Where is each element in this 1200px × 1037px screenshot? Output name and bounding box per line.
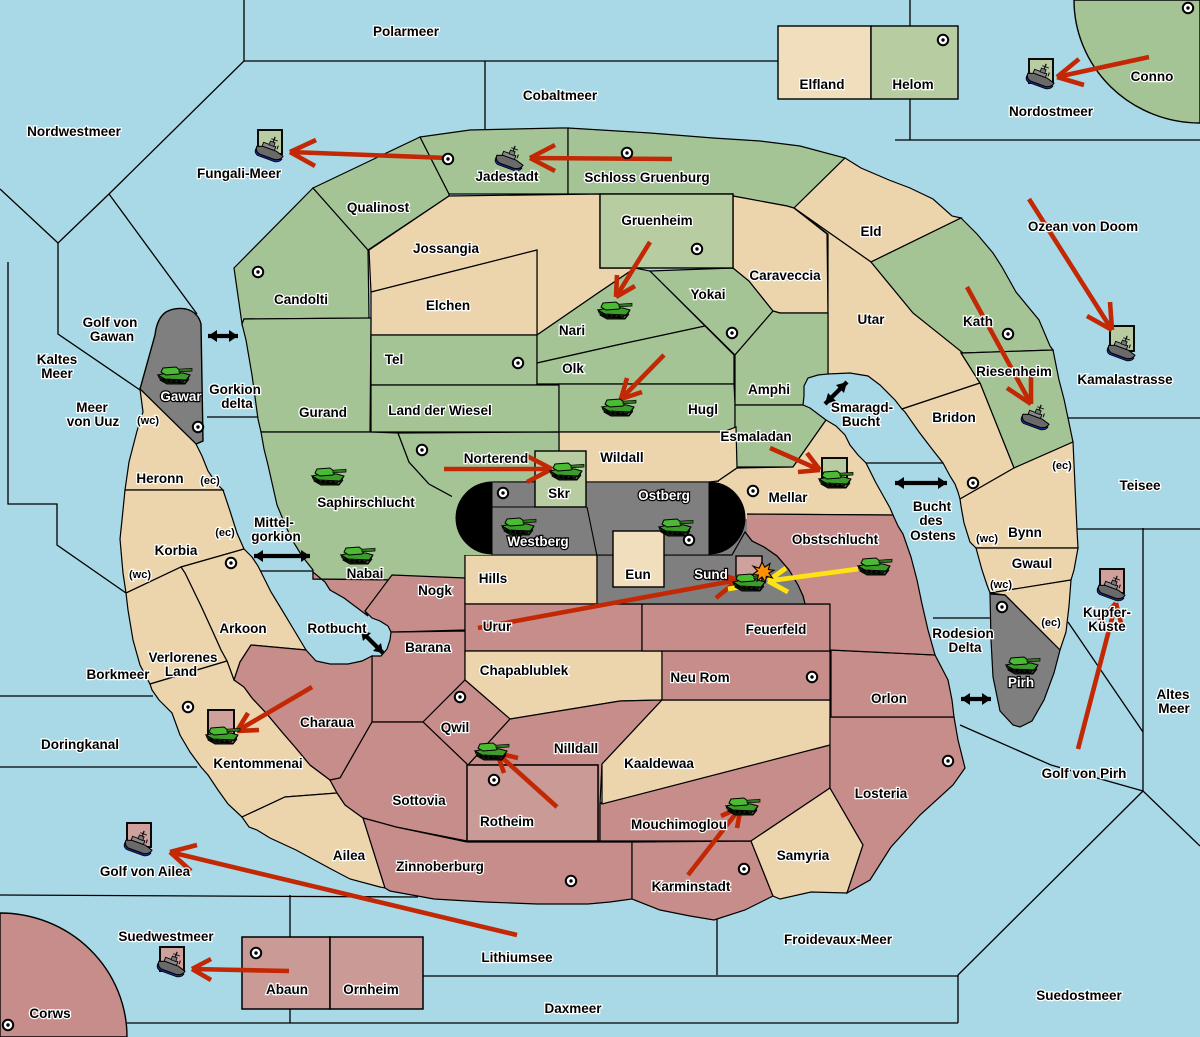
- svg-text:Smaragd-: Smaragd-: [831, 400, 893, 415]
- svg-text:Gwaul: Gwaul: [1012, 556, 1053, 571]
- svg-text:Borkmeer: Borkmeer: [86, 667, 150, 682]
- svg-text:Caraveccia: Caraveccia: [749, 268, 821, 283]
- svg-text:Nordwestmeer: Nordwestmeer: [27, 124, 122, 139]
- svg-text:Qwil: Qwil: [441, 720, 470, 735]
- svg-text:Kaltes: Kaltes: [37, 352, 78, 367]
- svg-text:Doringkanal: Doringkanal: [41, 737, 119, 752]
- svg-text:Golf von Pirh: Golf von Pirh: [1042, 766, 1127, 781]
- svg-text:Conno: Conno: [1131, 69, 1174, 84]
- svg-text:Land der Wiesel: Land der Wiesel: [388, 403, 491, 418]
- svg-text:(ec): (ec): [215, 527, 235, 539]
- svg-text:Eun: Eun: [625, 567, 651, 582]
- svg-text:Nari: Nari: [559, 323, 585, 338]
- svg-text:Altes: Altes: [1156, 687, 1189, 702]
- svg-text:Yokai: Yokai: [690, 287, 725, 302]
- svg-text:Candolti: Candolti: [274, 292, 328, 307]
- svg-text:Mellar: Mellar: [768, 490, 808, 505]
- svg-text:Orlon: Orlon: [871, 691, 907, 706]
- svg-text:Feuerfeld: Feuerfeld: [746, 622, 807, 637]
- svg-text:Pirh: Pirh: [1008, 675, 1034, 690]
- svg-text:Corws: Corws: [29, 1006, 70, 1021]
- svg-text:Helom: Helom: [892, 77, 933, 92]
- svg-text:Rodesion: Rodesion: [932, 626, 994, 641]
- svg-text:Gorkion: Gorkion: [209, 382, 261, 397]
- svg-text:Delta: Delta: [948, 640, 982, 655]
- svg-text:Kupfer-: Kupfer-: [1083, 605, 1131, 620]
- svg-text:Jossangia: Jossangia: [413, 241, 480, 256]
- svg-text:Zinnoberburg: Zinnoberburg: [396, 859, 484, 874]
- svg-text:Karminstadt: Karminstadt: [652, 879, 731, 894]
- svg-text:Barana: Barana: [405, 640, 451, 655]
- svg-text:Utar: Utar: [857, 312, 885, 327]
- svg-text:Mouchimoglou: Mouchimoglou: [631, 817, 727, 832]
- svg-text:Wildall: Wildall: [600, 450, 643, 465]
- svg-text:(ec): (ec): [1041, 617, 1061, 629]
- svg-text:Daxmeer: Daxmeer: [544, 1001, 602, 1016]
- svg-text:Bucht: Bucht: [913, 499, 952, 514]
- svg-text:Neu Rom: Neu Rom: [670, 670, 729, 685]
- svg-text:Gurand: Gurand: [299, 405, 347, 420]
- svg-text:Meer: Meer: [76, 400, 108, 415]
- svg-text:Kentommenai: Kentommenai: [213, 756, 302, 771]
- svg-text:Ornheim: Ornheim: [343, 982, 399, 997]
- svg-text:Golf von: Golf von: [83, 315, 138, 330]
- svg-text:Polarmeer: Polarmeer: [373, 24, 440, 39]
- svg-text:(wc): (wc): [137, 415, 159, 427]
- svg-text:delta: delta: [221, 396, 253, 411]
- svg-text:Gawan: Gawan: [90, 329, 134, 344]
- svg-text:Ostberg: Ostberg: [638, 488, 690, 503]
- svg-text:(ec): (ec): [1052, 460, 1072, 472]
- svg-text:Urur: Urur: [483, 619, 512, 634]
- svg-text:Westberg: Westberg: [507, 534, 568, 549]
- svg-text:Gawar: Gawar: [160, 389, 202, 404]
- svg-text:Skr: Skr: [548, 486, 571, 501]
- svg-text:Elfland: Elfland: [799, 77, 844, 92]
- svg-text:Nilldall: Nilldall: [554, 741, 598, 756]
- svg-text:Kaaldewaa: Kaaldewaa: [624, 756, 694, 771]
- svg-text:Abaun: Abaun: [266, 982, 308, 997]
- svg-text:von Uuz: von Uuz: [67, 414, 120, 429]
- svg-text:Fungali-Meer: Fungali-Meer: [197, 166, 282, 181]
- svg-text:Esmaladan: Esmaladan: [720, 429, 791, 444]
- svg-text:Obstschlucht: Obstschlucht: [792, 532, 879, 547]
- svg-text:Lithiumsee: Lithiumsee: [481, 950, 553, 965]
- svg-text:Jadestadt: Jadestadt: [475, 169, 539, 184]
- svg-text:Arkoon: Arkoon: [219, 621, 266, 636]
- svg-text:Suedwestmeer: Suedwestmeer: [118, 929, 214, 944]
- svg-text:Charaua: Charaua: [300, 715, 355, 730]
- svg-text:Tel: Tel: [385, 352, 404, 367]
- svg-text:Elchen: Elchen: [426, 298, 470, 313]
- svg-text:Nabai: Nabai: [347, 566, 384, 581]
- svg-text:Bridon: Bridon: [932, 410, 976, 425]
- svg-text:Bynn: Bynn: [1008, 525, 1042, 540]
- svg-text:Eld: Eld: [860, 224, 881, 239]
- svg-text:Suedostmeer: Suedostmeer: [1036, 988, 1122, 1003]
- svg-text:Sund: Sund: [694, 567, 728, 582]
- svg-text:Mittel-: Mittel-: [254, 515, 294, 530]
- svg-text:des: des: [919, 513, 942, 528]
- svg-text:Olk: Olk: [562, 361, 584, 376]
- svg-text:Rotbucht: Rotbucht: [307, 621, 367, 636]
- svg-text:Losteria: Losteria: [855, 786, 908, 801]
- svg-text:Nordostmeer: Nordostmeer: [1009, 104, 1094, 119]
- svg-text:(wc): (wc): [990, 579, 1012, 591]
- svg-text:Nogk: Nogk: [418, 583, 452, 598]
- svg-text:Samyria: Samyria: [777, 848, 830, 863]
- svg-text:Riesenheim: Riesenheim: [976, 364, 1052, 379]
- svg-text:Norterend: Norterend: [464, 451, 529, 466]
- svg-text:Teisee: Teisee: [1119, 478, 1161, 493]
- svg-text:Hugl: Hugl: [688, 402, 718, 417]
- svg-text:(ec): (ec): [200, 475, 220, 487]
- svg-text:Ailea: Ailea: [333, 848, 366, 863]
- svg-text:gorkion: gorkion: [251, 529, 301, 544]
- svg-text:Land: Land: [165, 664, 197, 679]
- svg-text:Küste: Küste: [1088, 619, 1126, 634]
- svg-text:Hills: Hills: [479, 571, 508, 586]
- svg-text:Saphirschlucht: Saphirschlucht: [317, 495, 415, 510]
- svg-text:Rotheim: Rotheim: [480, 814, 534, 829]
- svg-text:Chapablublek: Chapablublek: [480, 663, 569, 678]
- svg-text:Meer: Meer: [1158, 701, 1190, 716]
- svg-text:Verlorenes: Verlorenes: [148, 650, 217, 665]
- svg-text:Cobaltmeer: Cobaltmeer: [523, 88, 598, 103]
- svg-text:Amphi: Amphi: [748, 382, 790, 397]
- svg-text:Qualinost: Qualinost: [347, 200, 410, 215]
- svg-text:Meer: Meer: [41, 366, 73, 381]
- svg-text:(wc): (wc): [129, 569, 151, 581]
- svg-text:Kath: Kath: [963, 314, 993, 329]
- svg-text:Ostens: Ostens: [910, 528, 956, 543]
- svg-text:Kamalastrasse: Kamalastrasse: [1077, 372, 1173, 387]
- svg-text:Sottovia: Sottovia: [392, 793, 446, 808]
- svg-text:Korbia: Korbia: [155, 543, 198, 558]
- svg-text:(wc): (wc): [976, 533, 998, 545]
- svg-text:Ozean von Doom: Ozean von Doom: [1028, 219, 1138, 234]
- svg-text:Gruenheim: Gruenheim: [621, 213, 692, 228]
- svg-text:Golf von Ailea: Golf von Ailea: [100, 864, 191, 879]
- svg-text:Bucht: Bucht: [842, 414, 881, 429]
- svg-text:Heronn: Heronn: [136, 471, 183, 486]
- svg-text:Froidevaux-Meer: Froidevaux-Meer: [784, 932, 893, 947]
- svg-text:Schloss Gruenburg: Schloss Gruenburg: [584, 170, 709, 185]
